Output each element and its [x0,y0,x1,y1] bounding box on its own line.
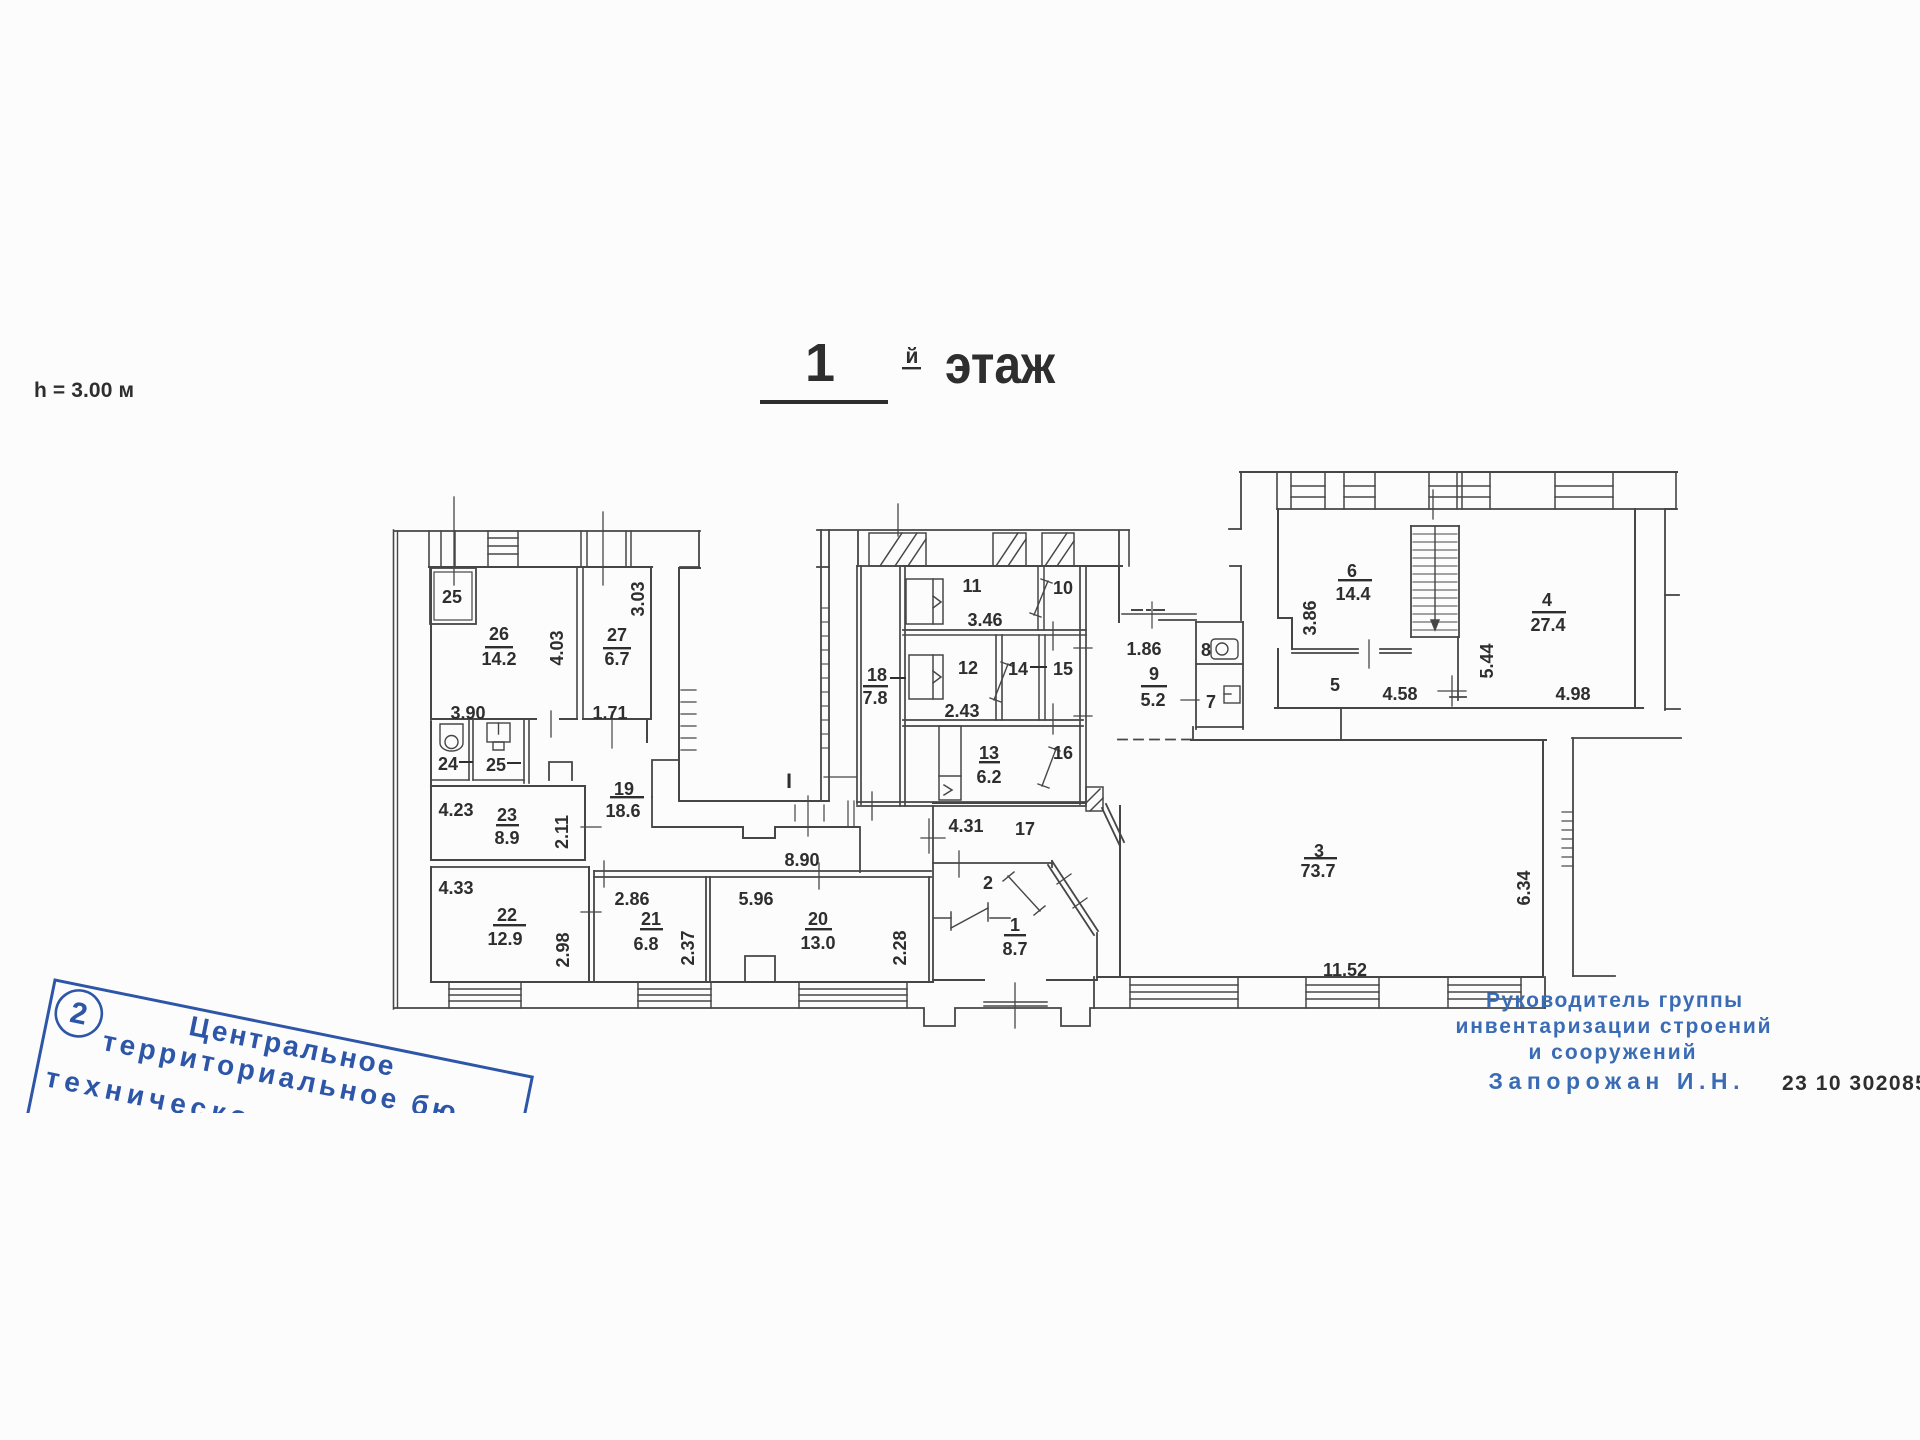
svg-text:2.98: 2.98 [553,932,573,967]
svg-text:11: 11 [962,576,981,596]
svg-text:5.2: 5.2 [1140,690,1165,710]
svg-text:2.37: 2.37 [678,930,698,965]
svg-text:Запорожан И.Н.: Запорожан И.Н. [1489,1068,1740,1094]
svg-text:26: 26 [489,624,509,644]
svg-text:I: I [786,770,792,793]
svg-text:11.52: 11.52 [1323,960,1367,980]
svg-text:3.03: 3.03 [628,581,648,616]
svg-text:25: 25 [442,587,462,607]
svg-text:23: 23 [497,805,517,825]
svg-text:1.86: 1.86 [1126,639,1161,659]
svg-text:24: 24 [438,754,458,774]
svg-text:3.86: 3.86 [1300,600,1320,635]
svg-text:8.7: 8.7 [1002,939,1027,959]
svg-text:5: 5 [1330,675,1340,695]
svg-text:4.58: 4.58 [1382,684,1417,704]
svg-text:h = 3.00 м: h = 3.00 м [34,379,134,402]
svg-text:2.28: 2.28 [890,930,910,965]
svg-text:6.2: 6.2 [976,767,1001,787]
svg-text:2: 2 [983,873,993,893]
svg-text:18: 18 [867,665,887,685]
svg-text:22: 22 [497,905,517,925]
svg-text:7.8: 7.8 [862,688,887,708]
svg-text:13: 13 [979,743,999,763]
svg-text:8.90: 8.90 [784,850,819,870]
svg-text:15: 15 [1053,659,1073,679]
svg-text:1: 1 [1010,915,1020,935]
svg-text:6.34: 6.34 [1514,870,1534,905]
svg-text:инвентаризации строений: инвентаризации строений [1456,1015,1771,1038]
svg-text:этаж: этаж [945,335,1056,395]
svg-text:13.0: 13.0 [800,933,835,953]
svg-text:6.7: 6.7 [604,649,629,669]
svg-text:4.31: 4.31 [948,816,983,836]
svg-text:8.9: 8.9 [494,828,519,848]
svg-text:10: 10 [1053,578,1073,598]
svg-text:4.33: 4.33 [438,878,473,898]
svg-text:16: 16 [1053,743,1073,763]
svg-text:5.96: 5.96 [738,889,773,909]
svg-text:5.44: 5.44 [1477,643,1497,678]
svg-text:6: 6 [1347,561,1357,581]
svg-text:2.43: 2.43 [944,701,979,721]
svg-text:12.9: 12.9 [487,929,522,949]
svg-text:14.2: 14.2 [481,649,516,669]
svg-text:4: 4 [1542,590,1552,610]
svg-text:4.23: 4.23 [438,800,473,820]
svg-text:23 10 302085: 23 10 302085 [1782,1072,1920,1095]
svg-text:73.7: 73.7 [1300,861,1335,881]
svg-text:17: 17 [1015,819,1035,839]
svg-text:8: 8 [1201,640,1211,660]
svg-text:Руководитель группы: Руководитель группы [1486,989,1742,1012]
svg-text:6.8: 6.8 [633,934,658,954]
svg-text:20: 20 [808,909,828,929]
svg-text:27.4: 27.4 [1530,615,1565,635]
svg-text:7: 7 [1206,692,1216,712]
svg-text:27: 27 [607,625,627,645]
svg-text:и сооружений: и сооружений [1529,1041,1696,1064]
svg-text:21: 21 [641,909,661,929]
svg-text:14: 14 [1008,659,1028,679]
svg-text:14.4: 14.4 [1335,584,1370,604]
svg-text:4.98: 4.98 [1555,684,1590,704]
svg-text:3.46: 3.46 [967,610,1002,630]
svg-text:3.90: 3.90 [450,703,485,723]
svg-text:2.86: 2.86 [614,889,649,909]
svg-text:25: 25 [486,755,506,775]
svg-text:4.03: 4.03 [547,630,567,665]
svg-text:2.11: 2.11 [552,815,572,849]
svg-text:1.71: 1.71 [592,703,627,723]
svg-text:9: 9 [1149,664,1159,684]
svg-text:18.6: 18.6 [605,801,640,821]
svg-text:12: 12 [958,658,978,678]
svg-text:1: 1 [805,333,835,393]
svg-text:й: й [906,345,919,368]
